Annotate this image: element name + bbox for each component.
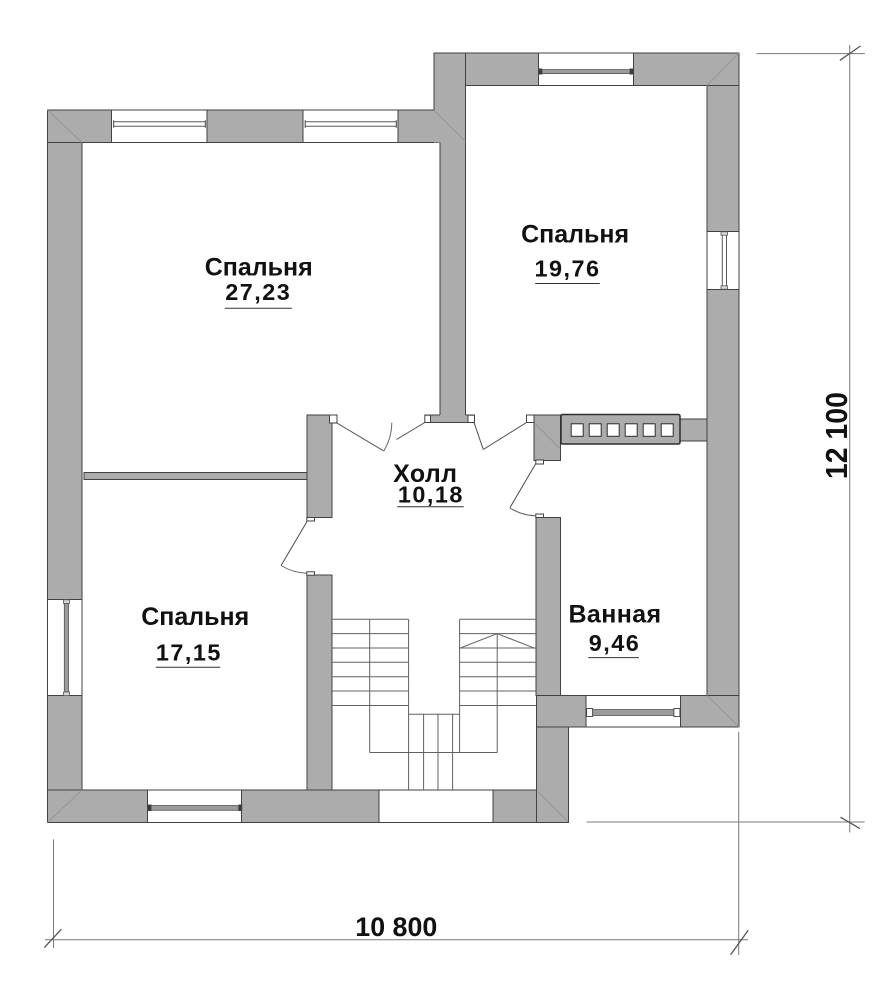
svg-text:12 100: 12 100 (819, 392, 854, 479)
svg-text:10 800: 10 800 (355, 912, 437, 942)
svg-text:Ванная: Ванная (568, 601, 661, 629)
svg-text:Спальня: Спальня (141, 603, 249, 631)
svg-text:Спальня: Спальня (205, 254, 313, 282)
svg-text:Спальня: Спальня (521, 221, 629, 249)
svg-text:17,15: 17,15 (156, 640, 222, 666)
svg-text:19,76: 19,76 (534, 255, 600, 281)
svg-text:9,46: 9,46 (589, 630, 641, 656)
svg-text:10,18: 10,18 (398, 482, 464, 508)
svg-text:27,23: 27,23 (225, 279, 291, 305)
